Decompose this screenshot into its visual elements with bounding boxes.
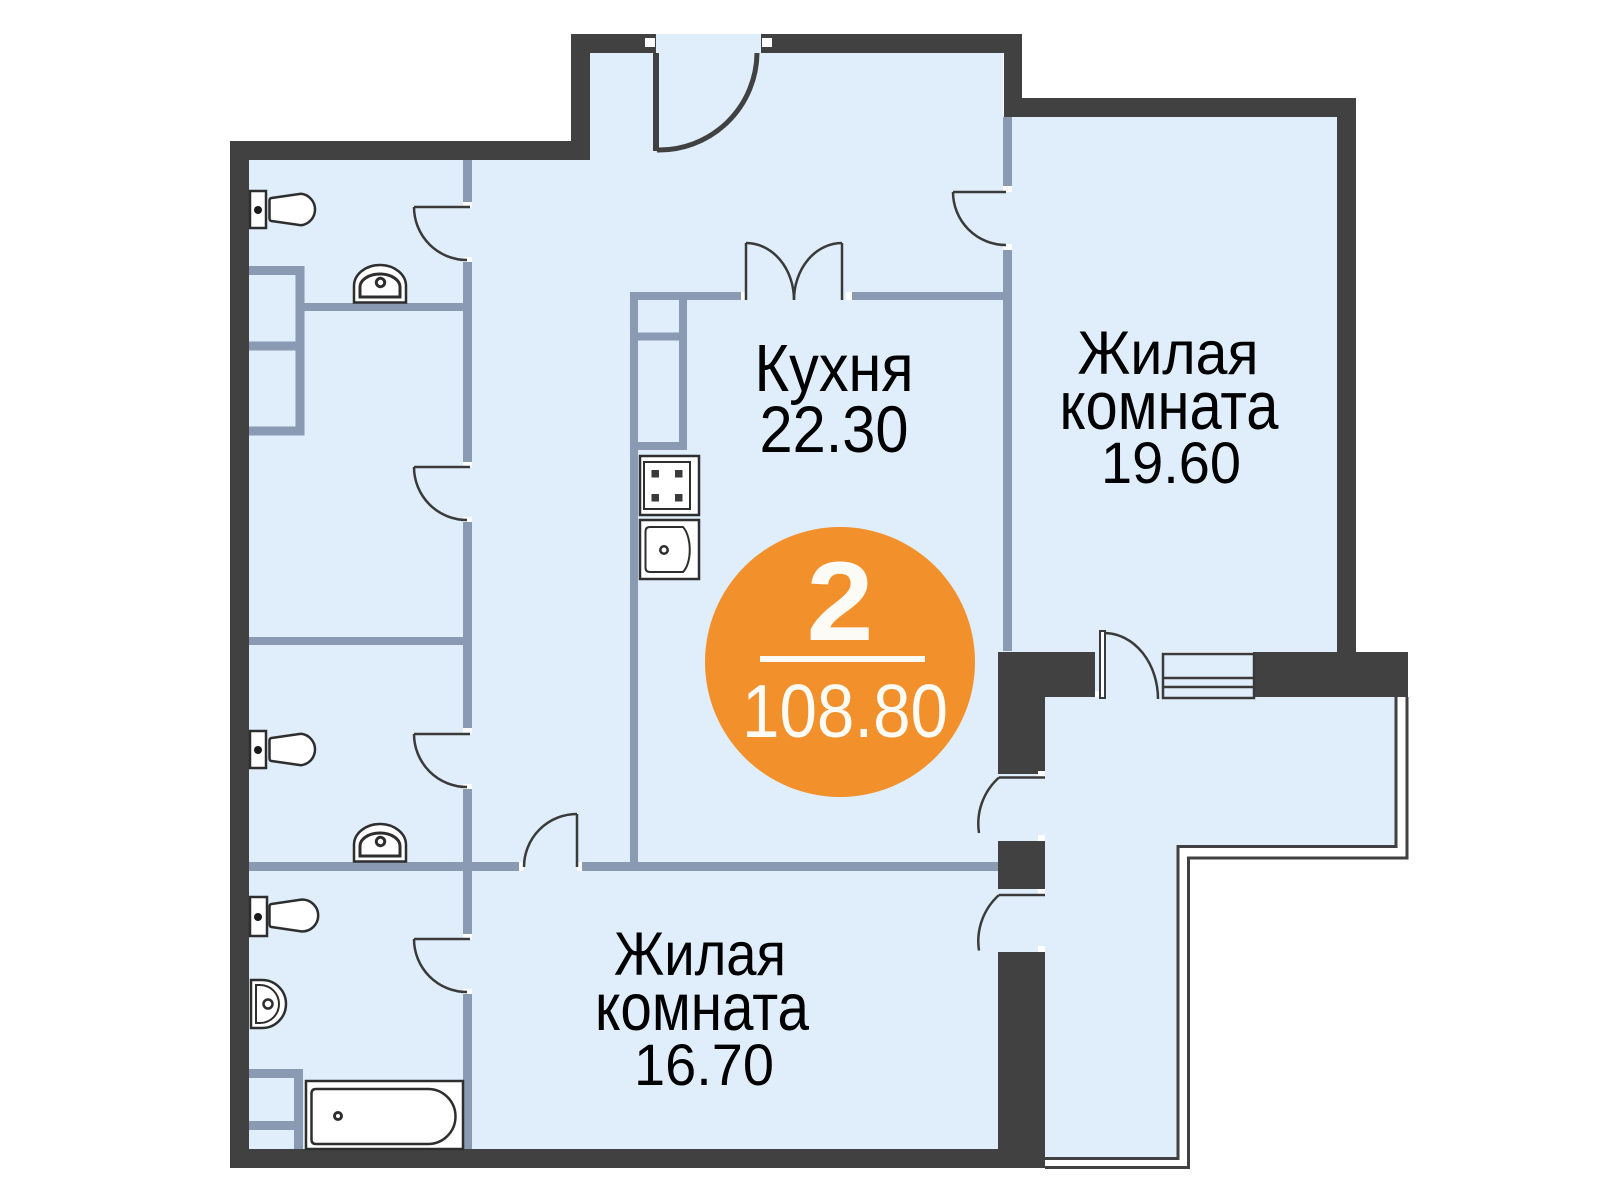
svg-text:2: 2: [807, 539, 874, 664]
svg-text:108.80: 108.80: [742, 669, 948, 753]
svg-text:22.30: 22.30: [760, 392, 909, 466]
svg-text:19.60: 19.60: [1101, 431, 1241, 496]
svg-text:16.70: 16.70: [634, 1033, 774, 1098]
